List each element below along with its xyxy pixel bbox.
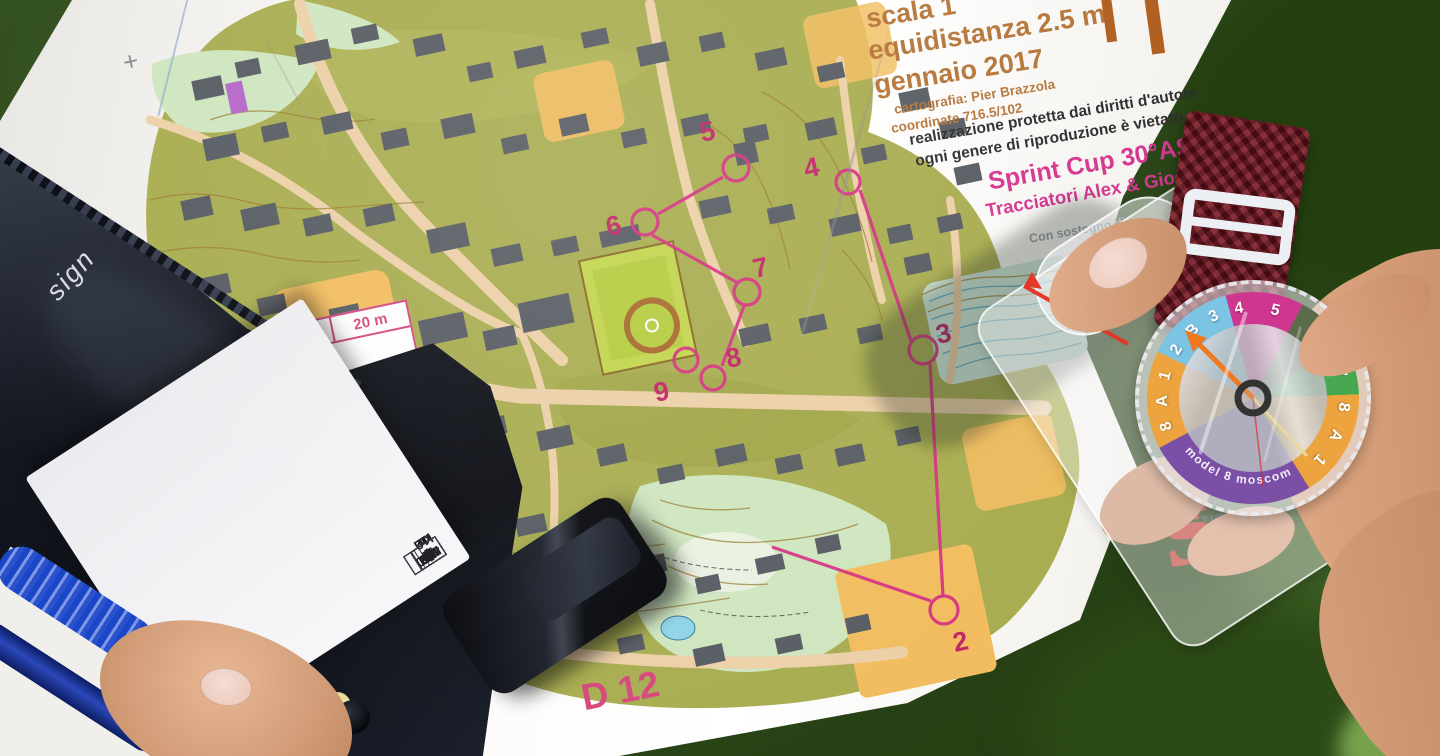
orienteering-photo: 2 3 4 5 6 7 8 9 1.2 km 20 m ╱× ⌐ ⊥ Γ + s… <box>0 0 1440 756</box>
sunlight-overlay <box>0 0 1440 756</box>
